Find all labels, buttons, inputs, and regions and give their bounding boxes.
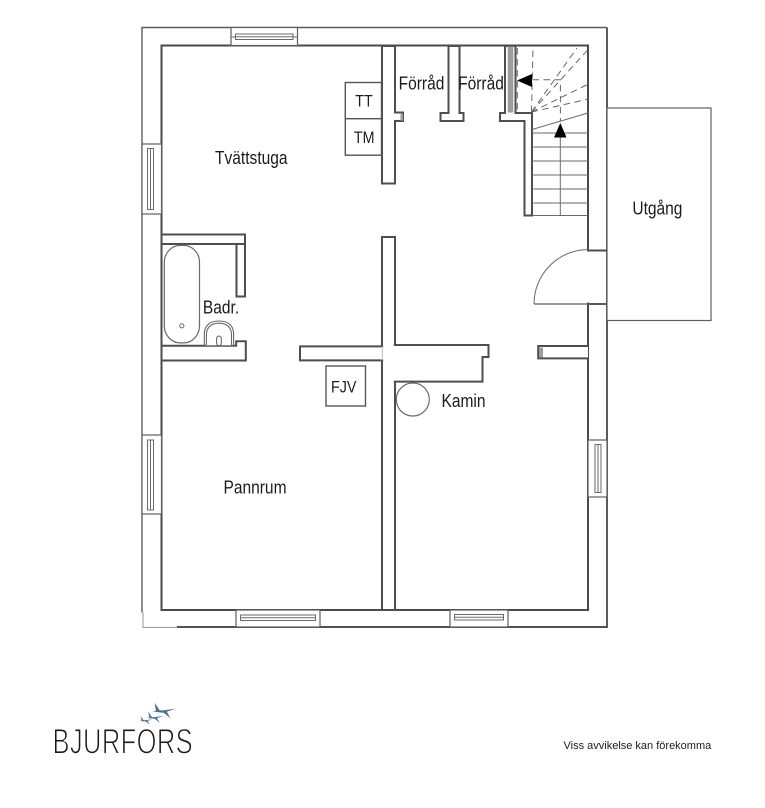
svg-text:Viss avvikelse kan förekomma: Viss avvikelse kan förekomma [564, 740, 713, 752]
svg-text:TM: TM [354, 129, 375, 147]
svg-text:Tvättstuga: Tvättstuga [215, 148, 288, 169]
svg-text:FJV: FJV [331, 379, 357, 397]
svg-text:BJURFORS: BJURFORS [53, 723, 194, 762]
svg-text:Förråd: Förråd [458, 73, 504, 94]
svg-text:Utgång: Utgång [632, 198, 682, 219]
svg-text:Badr.: Badr. [203, 297, 239, 318]
svg-text:Förråd: Förråd [399, 73, 445, 94]
svg-text:Pannrum: Pannrum [223, 477, 286, 498]
svg-text:Kamin: Kamin [441, 391, 485, 412]
svg-text:TT: TT [355, 93, 373, 111]
